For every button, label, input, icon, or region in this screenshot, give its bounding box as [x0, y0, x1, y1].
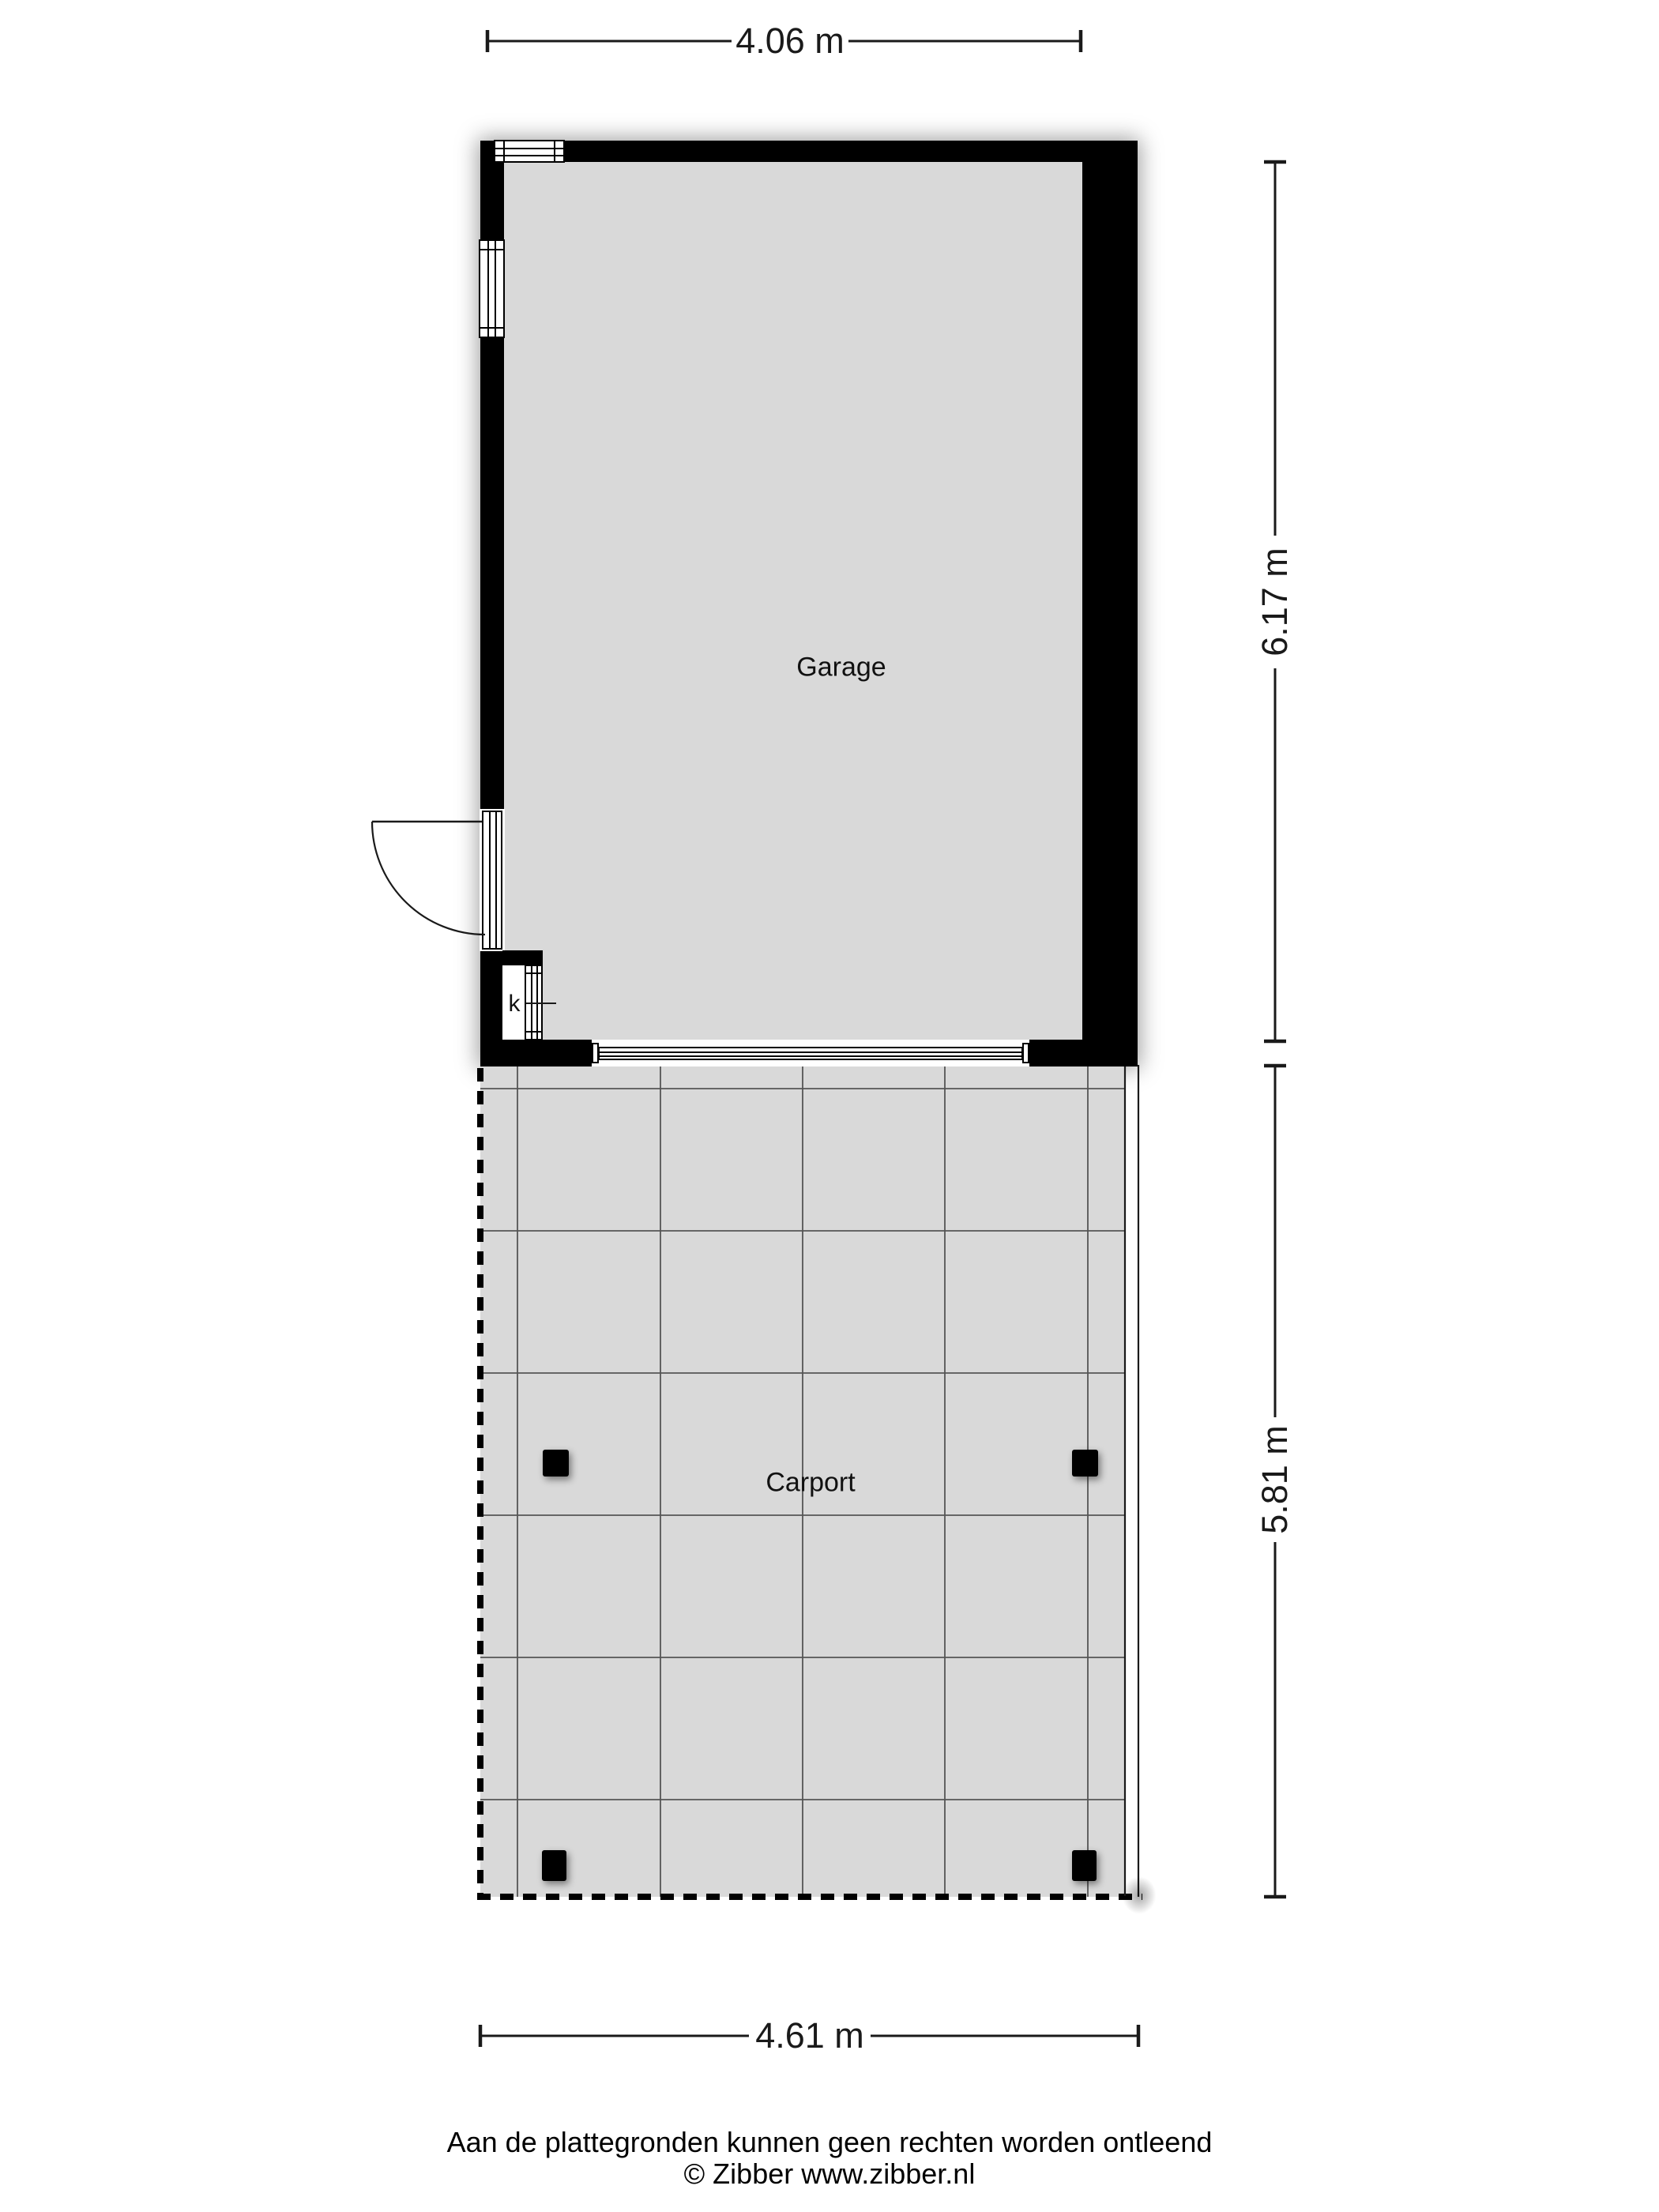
carport-pillar — [1072, 1450, 1098, 1477]
window-pane-line — [536, 966, 538, 1039]
dimension-bottom-label: 4.61 m — [755, 2015, 864, 2056]
entry-door-frame-icon — [482, 811, 502, 950]
closet-label: k — [509, 991, 521, 1018]
window-divider-line — [480, 327, 503, 329]
window-divider-line — [480, 249, 503, 250]
door-swing-arc — [372, 822, 485, 935]
dimension-right-carport-label: 5.81 m — [1255, 1425, 1296, 1534]
floor-plan-canvas: Garage Carport k 4.06 m 6.17 m 5.81 m 4.… — [0, 0, 1659, 2212]
window-divider-line — [503, 141, 505, 161]
window-pane-line — [487, 241, 489, 337]
garage-left-window-icon — [479, 239, 505, 338]
carport-pillar — [1072, 1850, 1097, 1881]
window-divider-line — [526, 972, 541, 974]
dimension-top-label: 4.06 m — [735, 21, 845, 62]
closet-window-icon — [525, 965, 543, 1040]
window-pane-line — [495, 241, 496, 337]
closet-wall — [502, 950, 543, 966]
garage-door-slat-line — [600, 1051, 1021, 1053]
fence-corner-shadow — [1115, 1869, 1163, 1921]
window-pane-line — [531, 966, 532, 1039]
garage-label: Garage — [796, 653, 886, 683]
carport-label: Carport — [766, 1468, 855, 1499]
footer: Aan de plattegronden kunnen geen rechten… — [0, 2127, 1659, 2190]
garage-top-window-icon — [494, 140, 565, 163]
garage-room — [504, 162, 1082, 1040]
garage-door-icon — [598, 1047, 1023, 1060]
garage-door-slat-line — [600, 1055, 1021, 1057]
footer-disclaimer: Aan de plattegronden kunnen geen rechten… — [0, 2127, 1659, 2158]
carport-pillar — [543, 1450, 569, 1477]
garage-door-right-cap — [1022, 1043, 1029, 1063]
dimension-right-garage-label: 6.17 m — [1255, 547, 1296, 656]
window-divider-line — [554, 141, 555, 161]
carport-pillar — [542, 1850, 566, 1881]
window-divider-line — [526, 1031, 541, 1033]
carport-right-fence — [1125, 1065, 1138, 1897]
footer-credit: © Zibber www.zibber.nl — [0, 2158, 1659, 2190]
door-frame-line — [495, 812, 497, 948]
door-frame-line — [489, 812, 491, 948]
